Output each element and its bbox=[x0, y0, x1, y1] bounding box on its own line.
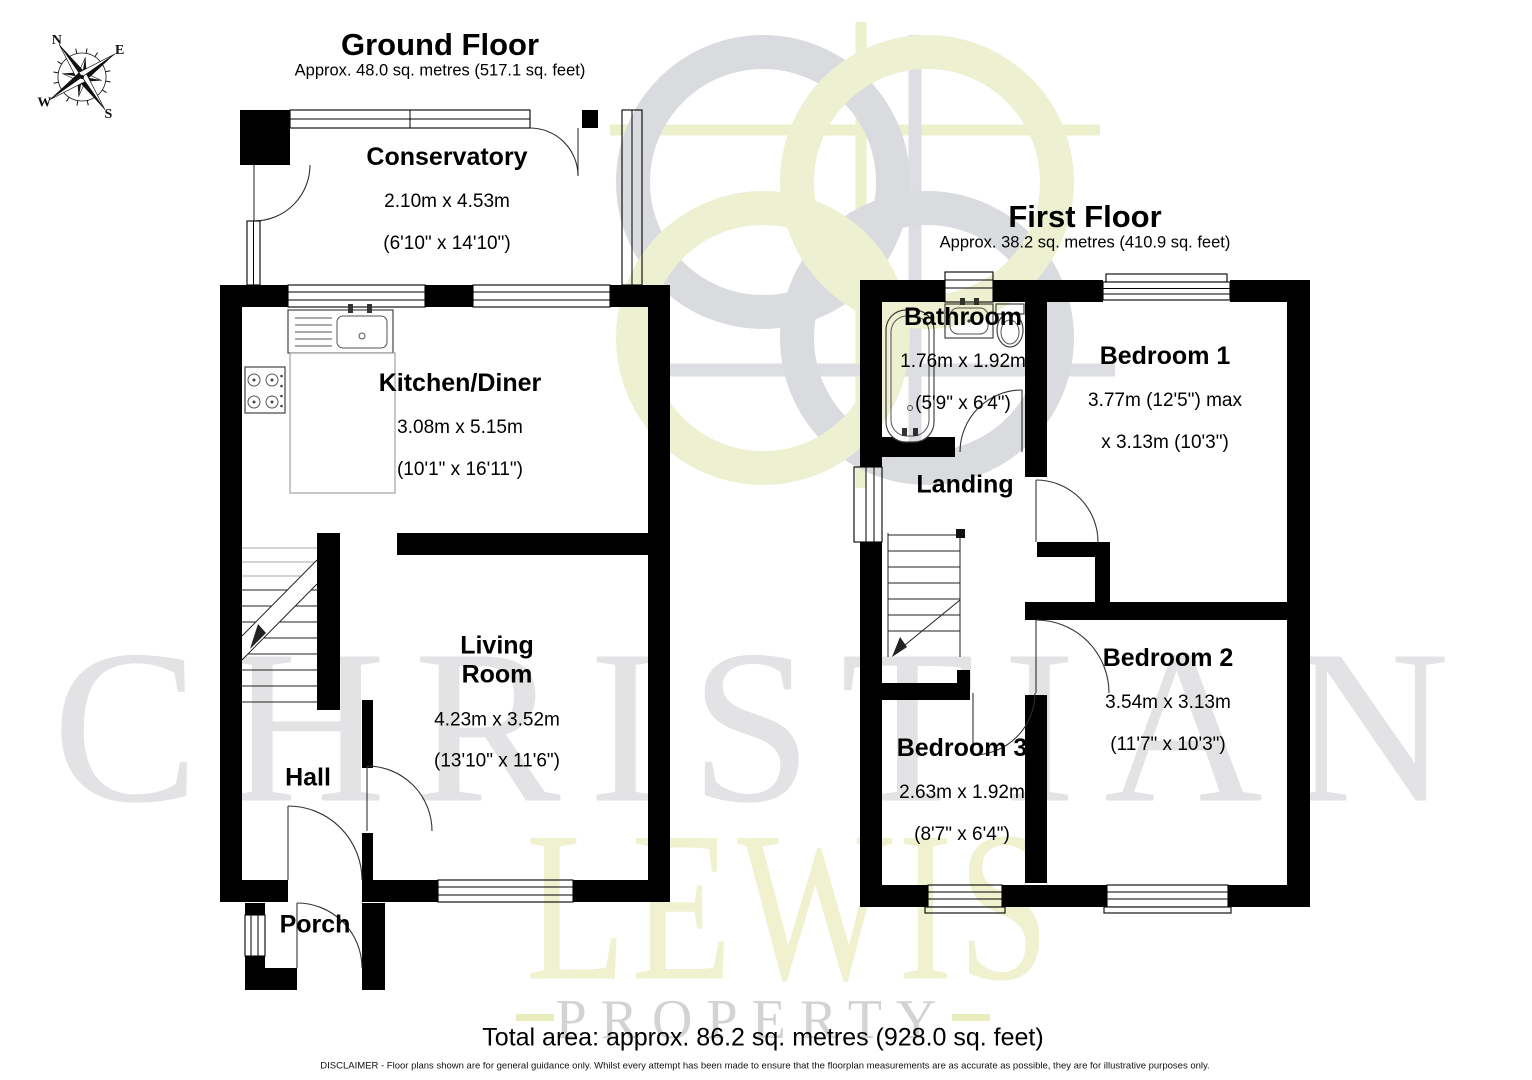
room-name: Living Room bbox=[434, 631, 560, 690]
room-dims-m: 1.76m x 1.92m bbox=[900, 351, 1026, 373]
room-dims-m: 4.23m x 3.52m bbox=[434, 709, 560, 731]
stairs-icon bbox=[242, 548, 317, 702]
total-area-text: Total area: approx. 86.2 sq. metres (928… bbox=[482, 1024, 1043, 1053]
compass-icon: N E S W bbox=[25, 20, 137, 132]
room-label-porch: Porch bbox=[280, 891, 351, 958]
compass-e-label: E bbox=[115, 43, 124, 58]
room-label-landing: Landing bbox=[916, 451, 1013, 518]
sink-icon bbox=[288, 304, 393, 353]
door-arc bbox=[1036, 620, 1109, 693]
room-dims-m: 3.54m x 3.13m bbox=[1103, 692, 1234, 714]
room-dims-m: 3.08m x 5.15m bbox=[379, 417, 542, 439]
room-label-bedroom3: Bedroom 3 2.63m x 1.92m (8'7" x 6'4") bbox=[897, 715, 1028, 865]
room-label-hall: Hall bbox=[285, 744, 331, 811]
compass-w-label: W bbox=[37, 96, 51, 111]
room-dims-ft: (6'10" x 14'10") bbox=[366, 233, 527, 255]
floorplan-page: N E S W bbox=[0, 0, 1532, 1080]
door-arc bbox=[530, 128, 578, 176]
room-name: Bedroom 1 bbox=[1088, 342, 1242, 372]
first-floor-title: First Floor bbox=[1008, 199, 1161, 235]
compass-n-label: N bbox=[52, 33, 62, 48]
ground-floor-subtitle: Approx. 48.0 sq. metres (517.1 sq. feet) bbox=[295, 62, 586, 81]
room-name: Kitchen/Diner bbox=[379, 369, 542, 399]
room-name: Conservatory bbox=[366, 143, 527, 173]
room-dims-ft: (5'9" x 6'4") bbox=[900, 393, 1026, 415]
room-dims-m: 2.10m x 4.53m bbox=[366, 191, 527, 213]
door-arc bbox=[254, 165, 310, 221]
room-name: Bathroom bbox=[900, 303, 1026, 333]
room-name: Hall bbox=[285, 763, 331, 793]
room-label-bedroom1: Bedroom 1 3.77m (12'5") max x 3.13m (10'… bbox=[1088, 323, 1242, 473]
room-name: Porch bbox=[280, 910, 351, 940]
stairs-icon bbox=[888, 529, 965, 657]
room-dims-ft: (10'1" x 16'11") bbox=[379, 459, 542, 481]
door-arc bbox=[288, 806, 362, 880]
room-label-bathroom: Bathroom 1.76m x 1.92m (5'9" x 6'4") bbox=[900, 284, 1026, 434]
room-dims-ft: (8'7" x 6'4") bbox=[897, 824, 1028, 846]
watermark-dash-left bbox=[516, 1014, 554, 1021]
room-dims-m: 3.77m (12'5") max bbox=[1088, 390, 1242, 412]
room-label-conservatory: Conservatory 2.10m x 4.53m (6'10" x 14'1… bbox=[366, 124, 527, 274]
room-label-bedroom2: Bedroom 2 3.54m x 3.13m (11'7" x 10'3") bbox=[1103, 625, 1234, 775]
room-name: Bedroom 3 bbox=[897, 734, 1028, 764]
compass-s-label: S bbox=[104, 107, 112, 122]
room-dims-m: 2.63m x 1.92m bbox=[897, 782, 1028, 804]
room-label-living: Living Room 4.23m x 3.52m (13'10" x 11'6… bbox=[434, 612, 560, 791]
door-arc bbox=[367, 766, 432, 831]
door-arc bbox=[1036, 480, 1098, 542]
room-label-kitchen: Kitchen/Diner 3.08m x 5.15m (10'1" x 16'… bbox=[379, 350, 542, 500]
room-dims-ft: (13'10" x 11'6") bbox=[434, 750, 560, 772]
room-name: Bedroom 2 bbox=[1103, 644, 1234, 674]
first-floor-subtitle: Approx. 38.2 sq. metres (410.9 sq. feet) bbox=[940, 234, 1231, 253]
watermark-dash-right bbox=[952, 1014, 990, 1021]
room-dims-ft: x 3.13m (10'3") bbox=[1088, 432, 1242, 454]
room-name: Landing bbox=[916, 470, 1013, 500]
hob-icon bbox=[245, 367, 285, 413]
disclaimer-text: DISCLAIMER - Floor plans shown are for g… bbox=[320, 1061, 1209, 1072]
room-dims-ft: (11'7" x 10'3") bbox=[1103, 734, 1234, 756]
ground-floor-title: Ground Floor bbox=[341, 27, 539, 63]
